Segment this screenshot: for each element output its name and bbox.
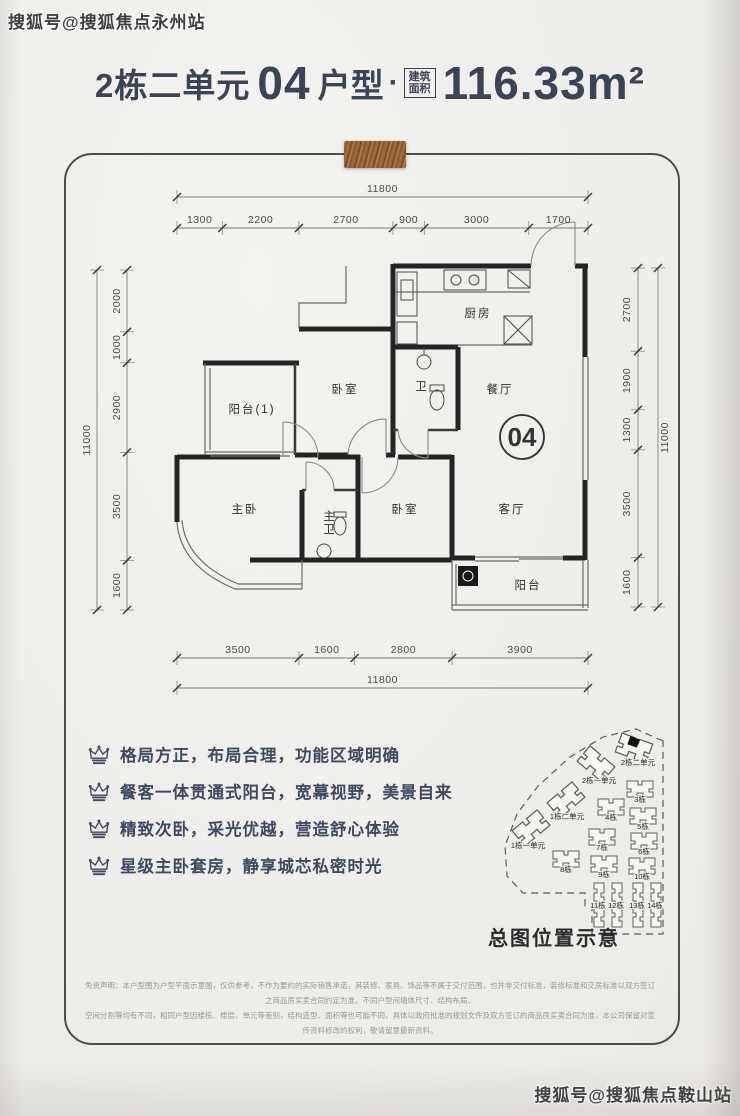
dim-label: 900 <box>399 214 418 226</box>
feature-item: 餐客一体贯通式阳台，宽幕视野，美景自来 <box>88 779 453 803</box>
dim-label: 2700 <box>621 297 633 322</box>
building-label: 4栋 <box>605 812 617 822</box>
crown-icon <box>88 781 110 802</box>
building-label: 3栋 <box>634 794 646 804</box>
building-label: 1栋一单元 <box>511 840 546 850</box>
sitemap: 2栋二单元2栋一单元1栋二单元1栋一单元3栋4栋5栋7栋6栋8栋9栋10栋11栋… <box>505 729 663 934</box>
feature-item: 格局方正，布局合理，功能区域明确 <box>88 742 453 766</box>
building-label: 11栋 <box>590 900 606 910</box>
dim-label: 11000 <box>659 422 671 453</box>
building-label: 14栋 <box>647 900 663 910</box>
crown-icon <box>88 744 110 765</box>
dim-label: 1000 <box>111 335 123 360</box>
building-label: 12栋 <box>608 900 624 910</box>
room-label: 餐厅 <box>487 382 514 396</box>
dim-label: 1700 <box>546 214 571 226</box>
unit-badge-number: 04 <box>508 422 537 452</box>
crown-icon <box>88 855 110 876</box>
building-label: 7栋 <box>596 842 608 852</box>
dim-label: 2000 <box>111 288 123 313</box>
dim-label: 1300 <box>621 417 633 442</box>
dim-label: 11000 <box>81 425 93 456</box>
building-label: 10栋 <box>634 871 650 881</box>
disclaimer-line2: 空间分割等均有不同，相同户型因楼栋、楼层、单元等差别，结构造型、面积等也可能不同… <box>85 1008 655 1038</box>
room-label: 主卧 <box>232 503 259 516</box>
dim-label: 2200 <box>248 214 273 226</box>
feature-text: 餐客一体贯通式阳台，宽幕视野，美景自来 <box>120 779 453 803</box>
dim-label: 2800 <box>391 644 416 656</box>
building-label: 1栋二单元 <box>550 811 585 821</box>
feature-list: 格局方正，布局合理，功能区域明确 餐客一体贯通式阳台，宽幕视野，美景自来 精致次… <box>88 742 453 877</box>
room-label: 客厅 <box>499 502 526 516</box>
feature-text: 格局方正，布局合理，功能区域明确 <box>120 742 400 766</box>
room-label: 厨房 <box>465 307 492 320</box>
dim-label: 3000 <box>464 214 489 226</box>
room-labels: 阳台(1)卧室卫厨房餐厅客厅主卧主卫卧室阳台 <box>228 307 541 592</box>
disclaimer-line1: 免责声明：本户型图为户型平面示意图，仅供参考，不作为要约的实际销售承诺，其装修、… <box>85 978 655 1008</box>
building-label: 6栋 <box>638 846 650 856</box>
room-label: 卫 <box>415 381 429 393</box>
dim-label: 1600 <box>314 644 339 656</box>
building-label: 13栋 <box>629 900 645 910</box>
disclaimer: 免责声明：本户型图为户型平面示意图，仅供参考，不作为要约的实际销售承诺，其装修、… <box>85 978 655 1038</box>
floorplan-poster: 搜狐号@搜狐焦点永州站 2栋二单元 04 户型 · 建筑 面积 116.33m² <box>0 0 740 1116</box>
room-label: 阳台(1) <box>228 402 275 416</box>
building-label: 9栋 <box>598 869 610 879</box>
dim-label: 11800 <box>367 674 398 686</box>
sitemap-title: 总图位置示意 <box>488 922 620 951</box>
dim-label: 1900 <box>621 368 633 393</box>
dim-label: 3500 <box>225 644 250 656</box>
feature-text: 精致次卧，采光优越，营造舒心体验 <box>120 816 400 840</box>
watermark-bottom-right: 搜狐号@搜狐焦点鞍山站 <box>534 1081 732 1106</box>
feature-item: 星级主卧套房，静享城芯私密时光 <box>88 853 453 877</box>
dim-label: 3500 <box>111 494 123 519</box>
building-label: 8栋 <box>560 864 572 874</box>
floorplan-fixtures <box>317 270 532 586</box>
crown-icon <box>88 818 110 839</box>
room-label: 卧室 <box>332 382 359 396</box>
dim-label: 11800 <box>367 183 398 195</box>
dim-label: 3900 <box>507 644 532 656</box>
dim-label: 2700 <box>333 214 358 226</box>
dim-label: 1600 <box>621 570 633 595</box>
feature-item: 精致次卧，采光优越，营造舒心体验 <box>88 816 453 840</box>
dim-label: 1600 <box>111 573 123 598</box>
floorplan-canvas: 1300220027009003000170011800350016002800… <box>0 0 740 1116</box>
unit-number-badge: 04 <box>500 415 544 459</box>
dim-label: 3500 <box>621 491 633 516</box>
washer-icon <box>458 566 478 586</box>
feature-text: 星级主卧套房，静享城芯私密时光 <box>120 853 383 877</box>
room-label: 阳台 <box>515 578 542 592</box>
room-label: 卧室 <box>392 502 419 516</box>
building-label: 5栋 <box>637 821 649 831</box>
building-label: 2栋一单元 <box>582 775 617 785</box>
dim-label: 2900 <box>111 395 123 420</box>
building-label: 2栋二单元 <box>621 757 656 767</box>
dim-label: 1300 <box>187 214 212 226</box>
